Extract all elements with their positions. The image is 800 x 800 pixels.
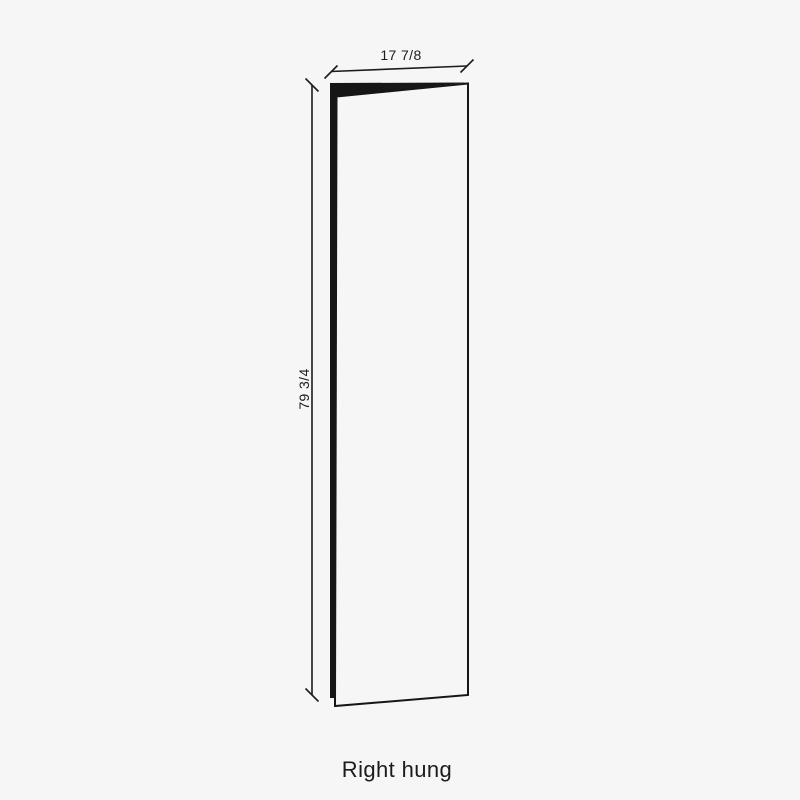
width-dimension-label: 17 7/8 (339, 47, 463, 63)
door-drawing (0, 0, 800, 800)
door-face (335, 84, 468, 707)
door-diagram: 17 7/8 79 3/4 Right hung (0, 0, 800, 800)
width-dimension-line (331, 66, 467, 72)
caption: Right hung (0, 757, 794, 783)
height-dimension-label: 79 3/4 (296, 368, 312, 409)
